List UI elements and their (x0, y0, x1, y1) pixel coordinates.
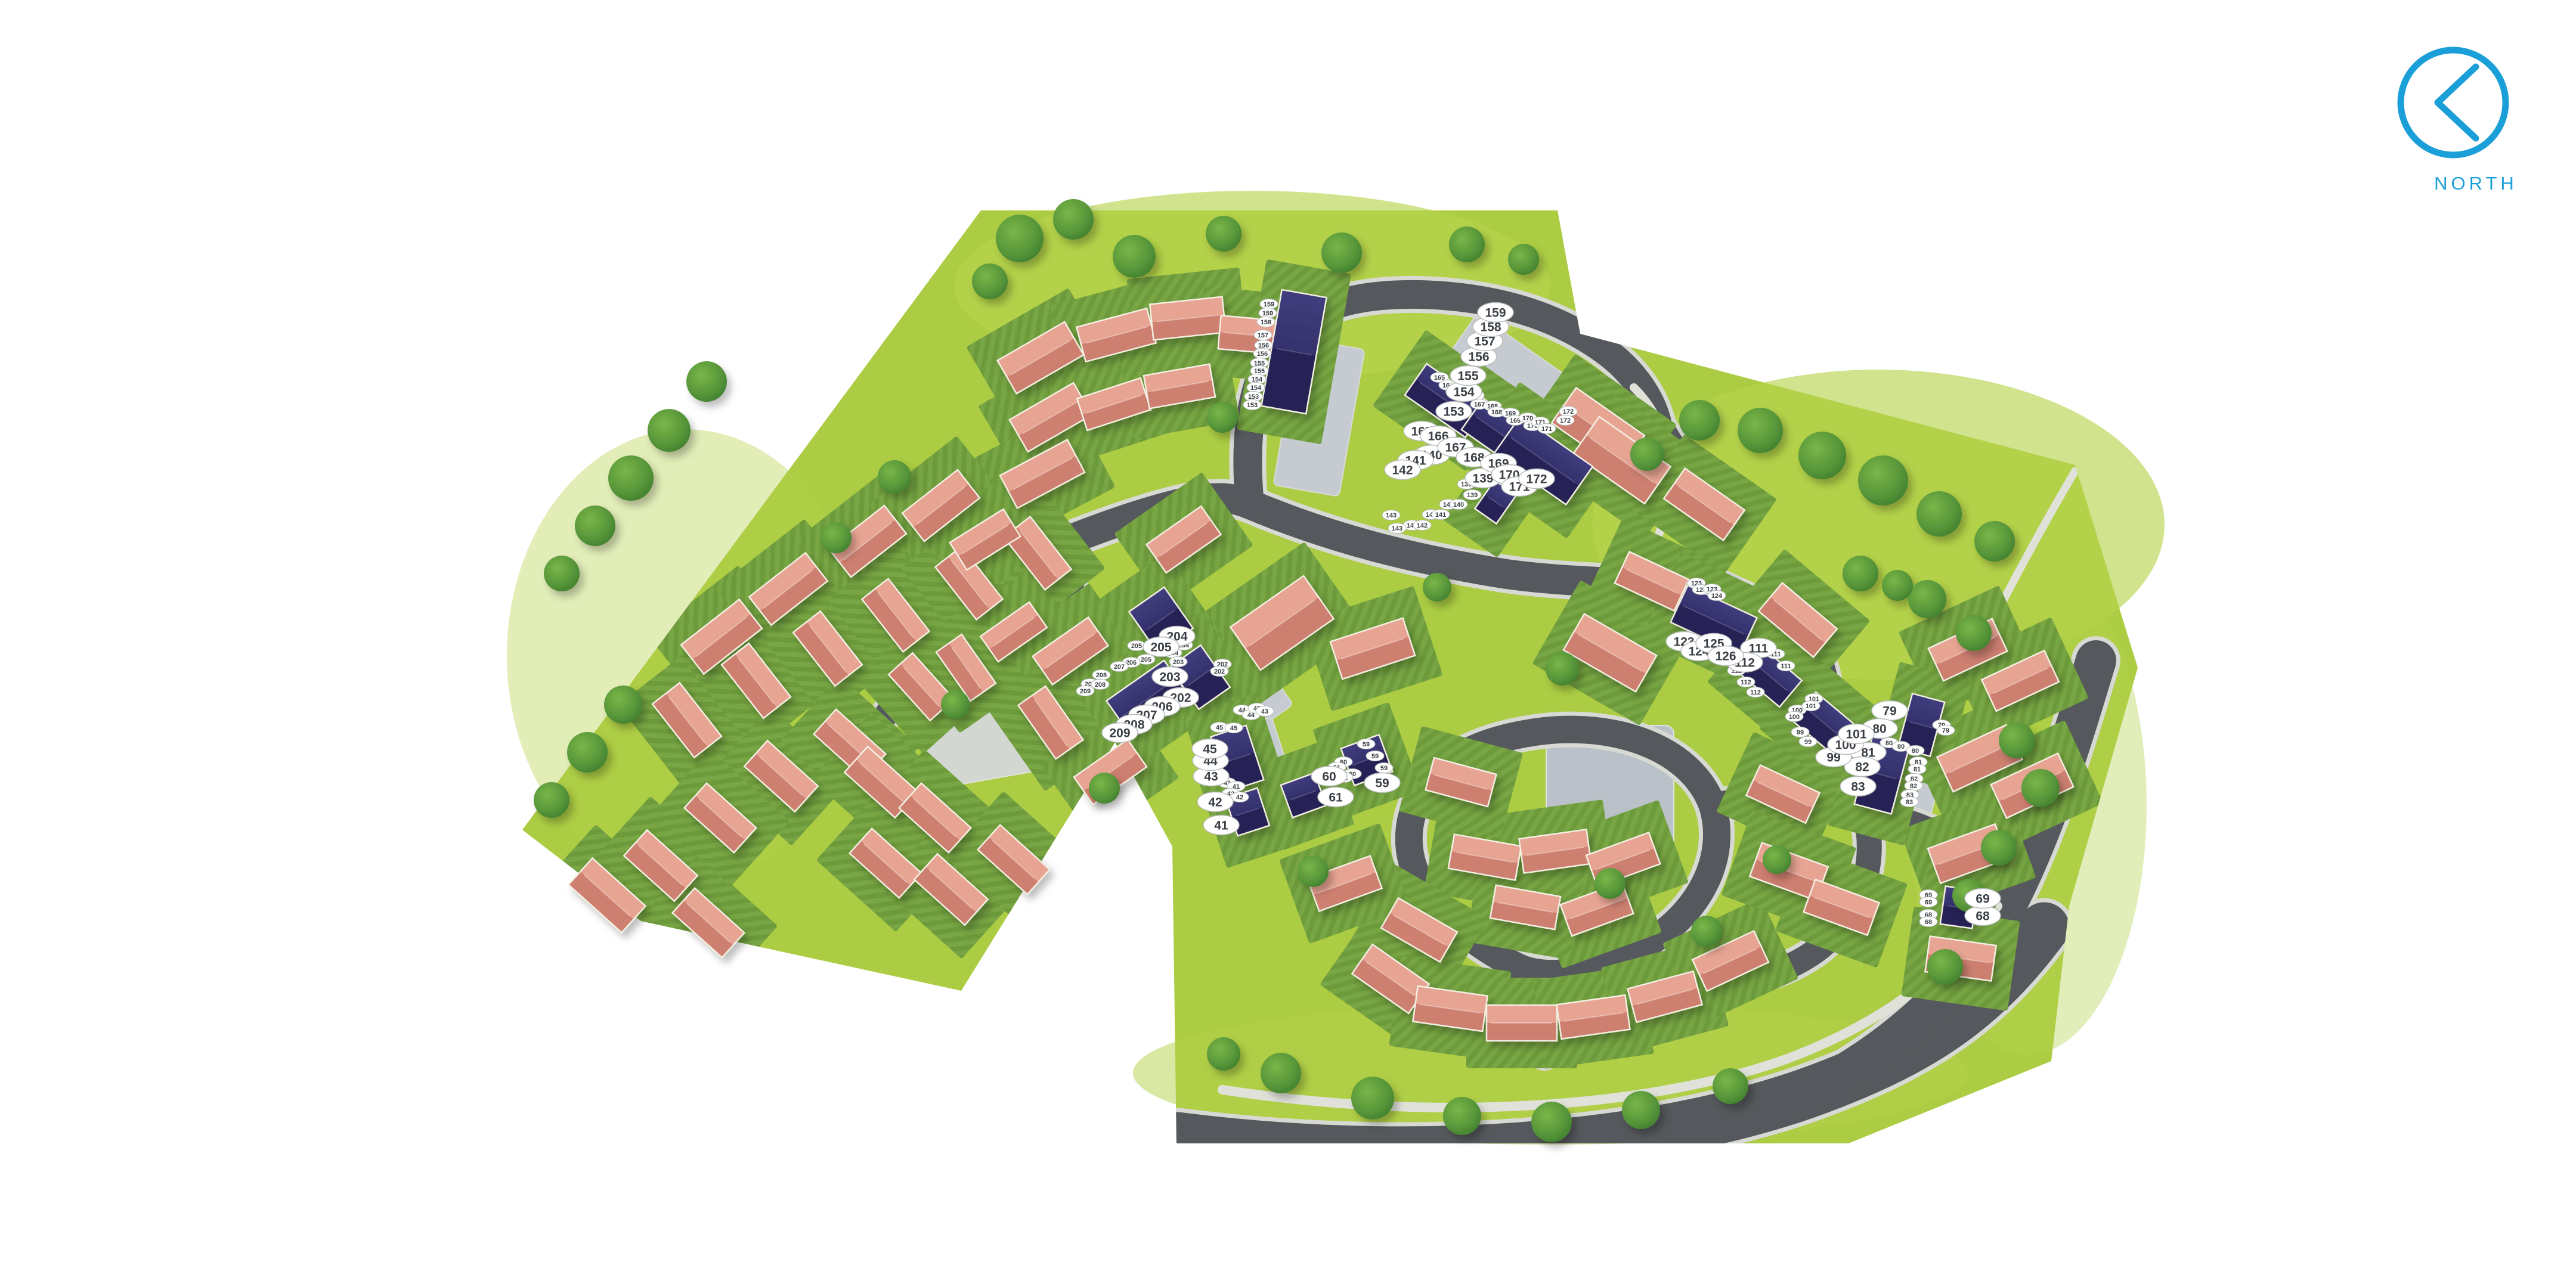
plot-badge-41[interactable]: 41 (1203, 816, 1239, 835)
plot-badge-81[interactable]: 81 (1908, 764, 1926, 774)
plot-badge-100[interactable]: 100 (1785, 712, 1803, 722)
svg-text:42: 42 (1208, 795, 1222, 809)
plot-badge-142[interactable]: 142 (1413, 520, 1431, 531)
tree (1206, 216, 1241, 252)
tree (1630, 438, 1664, 471)
site-plan-page: 1591591581571561561551551541541531531651… (0, 0, 2576, 1265)
plot-badge-111[interactable]: 111 (1777, 661, 1795, 671)
svg-text:154: 154 (1252, 376, 1263, 383)
svg-text:208: 208 (1095, 681, 1106, 689)
svg-text:69: 69 (1925, 899, 1932, 906)
tree (1594, 868, 1626, 899)
svg-text:141: 141 (1435, 511, 1446, 519)
plot-badge-158[interactable]: 158 (1257, 317, 1275, 327)
svg-text:43: 43 (1261, 708, 1268, 715)
svg-text:79: 79 (1883, 704, 1896, 718)
plot-badge-143[interactable]: 143 (1382, 510, 1400, 520)
site-plan-map: 1591591581571561561551551541541531531651… (0, 0, 2576, 1265)
tree (1053, 199, 1094, 240)
tree (1443, 1097, 1481, 1135)
svg-text:172: 172 (1563, 408, 1574, 416)
plot-badge-101[interactable]: 101 (1838, 724, 1874, 744)
tree (1321, 232, 1362, 273)
svg-text:41: 41 (1214, 818, 1228, 832)
svg-text:172: 172 (1560, 417, 1571, 424)
tree (1927, 949, 1963, 985)
plot-badge-153[interactable]: 153 (1436, 402, 1472, 421)
plot-badge-157[interactable]: 157 (1254, 330, 1272, 340)
plot-badge-45[interactable]: 45 (1192, 739, 1228, 759)
svg-text:81: 81 (1914, 766, 1921, 773)
svg-text:167: 167 (1474, 401, 1485, 408)
svg-text:155: 155 (1457, 369, 1478, 383)
svg-text:59: 59 (1371, 753, 1379, 760)
tree (1546, 652, 1579, 686)
plot-badge-155[interactable]: 155 (1450, 366, 1486, 386)
plot-badge-99[interactable]: 99 (1791, 727, 1809, 737)
plot-badge-79[interactable]: 79 (1937, 725, 1955, 736)
plot-badge-99[interactable]: 99 (1799, 737, 1817, 747)
svg-text:157: 157 (1258, 332, 1268, 339)
svg-text:159: 159 (1262, 310, 1273, 317)
svg-text:43: 43 (1204, 770, 1218, 783)
svg-text:208: 208 (1096, 672, 1107, 679)
svg-text:59: 59 (1363, 741, 1370, 748)
svg-text:60: 60 (1322, 770, 1336, 783)
svg-text:59: 59 (1380, 765, 1388, 772)
plot-badge-83[interactable]: 83 (1840, 777, 1876, 796)
svg-text:143: 143 (1386, 512, 1397, 519)
svg-text:100: 100 (1789, 714, 1800, 721)
plot-badge-69[interactable]: 69 (1919, 897, 1937, 907)
plot-badge-45[interactable]: 45 (1225, 723, 1243, 733)
tree (534, 782, 569, 818)
svg-text:205: 205 (1141, 656, 1151, 663)
svg-text:156: 156 (1257, 351, 1268, 358)
svg-text:45: 45 (1203, 742, 1217, 756)
svg-text:209: 209 (1109, 726, 1130, 740)
plot-badge-126[interactable]: 126 (1708, 646, 1744, 666)
tree (996, 215, 1044, 262)
svg-text:156: 156 (1258, 342, 1269, 349)
svg-text:83: 83 (1906, 799, 1913, 806)
svg-text:142: 142 (1392, 463, 1413, 477)
plot-badge-68[interactable]: 68 (1965, 906, 2001, 926)
svg-text:68: 68 (1925, 919, 1932, 926)
svg-text:205: 205 (1131, 643, 1142, 650)
svg-text:124: 124 (1711, 593, 1723, 600)
tree (1908, 580, 1946, 618)
plot-badge-154[interactable]: 154 (1247, 383, 1265, 393)
plot-badge-153[interactable]: 153 (1243, 400, 1261, 410)
tree (1763, 845, 1791, 874)
svg-text:171: 171 (1541, 426, 1552, 433)
tree (2021, 769, 2060, 807)
plot-badge-61[interactable]: 61 (1318, 787, 1354, 807)
svg-text:209: 209 (1080, 688, 1091, 695)
plot-badge-80[interactable]: 80 (1906, 746, 1924, 756)
plot-badge-101[interactable]: 101 (1802, 701, 1820, 711)
tree (1956, 615, 1992, 651)
plot-badge-207[interactable]: 207 (1110, 662, 1128, 672)
tree (1298, 856, 1329, 887)
svg-text:153: 153 (1247, 402, 1258, 409)
svg-text:82: 82 (1855, 760, 1869, 774)
tree (1207, 402, 1238, 433)
svg-text:80: 80 (1885, 740, 1893, 747)
svg-text:140: 140 (1453, 501, 1464, 509)
chevron-left-icon (2438, 67, 2476, 138)
svg-text:99: 99 (1804, 739, 1812, 746)
svg-text:45: 45 (1230, 725, 1237, 732)
svg-text:172: 172 (1526, 472, 1547, 486)
tree (1738, 408, 1783, 453)
svg-text:45: 45 (1216, 724, 1223, 731)
svg-text:68: 68 (1976, 909, 1990, 923)
svg-text:139: 139 (1472, 472, 1493, 485)
north-compass (2394, 43, 2513, 162)
svg-text:112: 112 (1750, 689, 1761, 696)
tree (1999, 723, 2035, 758)
svg-text:154: 154 (1453, 385, 1474, 399)
tree (686, 361, 727, 402)
plot-badge-142[interactable]: 142 (1385, 460, 1420, 480)
svg-text:143: 143 (1392, 525, 1402, 532)
tree (1449, 227, 1485, 262)
plot-badge-82[interactable]: 82 (1905, 781, 1922, 791)
disclaimer-text: *While we endeavour to make our property… (17, 1229, 1888, 1251)
plot-badge-205[interactable]: 205 (1143, 637, 1179, 657)
svg-text:139: 139 (1467, 492, 1478, 499)
tree (1423, 573, 1451, 602)
tree (1974, 521, 2015, 562)
svg-text:154: 154 (1250, 385, 1262, 392)
compass-circle-icon (2401, 50, 2506, 155)
plot-badge-202[interactable]: 202 (1210, 666, 1228, 677)
plot-badge-208[interactable]: 208 (1092, 670, 1110, 680)
plot-badge-172[interactable]: 172 (1556, 416, 1574, 426)
tree (1508, 244, 1539, 275)
svg-text:61: 61 (1329, 790, 1343, 804)
plot-badge-139[interactable]: 139 (1463, 490, 1481, 500)
svg-text:202: 202 (1214, 668, 1225, 675)
svg-text:69: 69 (1976, 892, 1989, 906)
svg-text:159: 159 (1485, 306, 1506, 320)
svg-text:203: 203 (1173, 659, 1184, 666)
plot-badge-83[interactable]: 83 (1900, 797, 1918, 807)
svg-text:59: 59 (1375, 776, 1389, 790)
plot-badge-208[interactable]: 208 (1091, 680, 1109, 690)
svg-text:207: 207 (1114, 663, 1125, 671)
plot-badge-59[interactable]: 59 (1375, 763, 1393, 773)
svg-text:101: 101 (1806, 703, 1816, 710)
house-detached-red (1487, 1005, 1557, 1041)
plot-badge-159[interactable]: 159 (1478, 303, 1513, 323)
plot-badge-156[interactable]: 156 (1253, 349, 1271, 359)
svg-text:153: 153 (1248, 393, 1259, 401)
plot-badge-42[interactable]: 42 (1197, 792, 1233, 812)
tree (1089, 773, 1120, 804)
tree (1981, 830, 2017, 866)
tree (1261, 1053, 1301, 1093)
tree (941, 690, 970, 719)
tree (1858, 455, 1908, 506)
plot-badge-203[interactable]: 203 (1169, 657, 1187, 667)
svg-text:42: 42 (1236, 794, 1243, 801)
tree (1691, 916, 1722, 947)
svg-text:153: 153 (1443, 405, 1464, 418)
tree (648, 409, 691, 452)
tree (1882, 570, 1913, 601)
tree (1113, 235, 1156, 278)
svg-text:101: 101 (1846, 727, 1866, 741)
plot-badge-141[interactable]: 141 (1432, 510, 1450, 520)
plot-badge-68[interactable]: 68 (1919, 917, 1937, 927)
svg-text:80: 80 (1912, 748, 1919, 755)
plot-badge-209[interactable]: 209 (1102, 723, 1138, 743)
plot-badge-143[interactable]: 143 (1388, 523, 1406, 534)
tree (1622, 1091, 1660, 1129)
plot-badge-59[interactable]: 59 (1357, 739, 1375, 749)
plot-badge-159[interactable]: 159 (1260, 299, 1278, 309)
svg-text:82: 82 (1910, 783, 1917, 790)
plot-badge-171[interactable]: 171 (1538, 424, 1556, 434)
svg-text:83: 83 (1851, 780, 1865, 793)
tree (544, 556, 580, 591)
svg-text:165: 165 (1434, 374, 1445, 382)
plot-badge-159[interactable]: 159 (1259, 308, 1277, 318)
plot-badge-43[interactable]: 43 (1256, 706, 1274, 717)
tree (1713, 1068, 1748, 1104)
svg-text:159: 159 (1264, 301, 1274, 308)
svg-text:80: 80 (1897, 743, 1905, 751)
svg-text:203: 203 (1159, 670, 1180, 684)
svg-text:111: 111 (1781, 663, 1791, 670)
plot-badge-60[interactable]: 60 (1311, 767, 1347, 786)
svg-text:155: 155 (1254, 368, 1265, 375)
tree (972, 263, 1008, 299)
svg-text:79: 79 (1942, 727, 1949, 734)
svg-text:80: 80 (1872, 722, 1886, 736)
tree (878, 460, 911, 494)
tree (1531, 1102, 1572, 1142)
svg-text:126: 126 (1715, 649, 1736, 663)
plot-badge-124[interactable]: 124 (1708, 591, 1726, 601)
tree (604, 686, 642, 724)
svg-text:205: 205 (1150, 640, 1171, 654)
tree (1351, 1077, 1394, 1120)
plot-badge-79[interactable]: 79 (1872, 701, 1908, 721)
plot-badge-140[interactable]: 140 (1450, 500, 1467, 510)
plot-badge-209[interactable]: 209 (1076, 686, 1094, 696)
tree (1207, 1037, 1240, 1071)
tree (575, 506, 615, 546)
plot-badge-172[interactable]: 172 (1559, 407, 1577, 417)
house-detached-red (1150, 297, 1226, 340)
svg-text:112: 112 (1741, 679, 1751, 686)
plot-badge-172[interactable]: 172 (1519, 469, 1555, 489)
plot-badge-59[interactable]: 59 (1366, 751, 1384, 761)
north-label: NORTH (2392, 173, 2559, 194)
tree (1843, 556, 1878, 591)
plot-badge-59[interactable]: 59 (1364, 773, 1400, 793)
svg-text:158: 158 (1261, 319, 1271, 326)
plot-badge-112[interactable]: 112 (1737, 677, 1755, 687)
plot-badge-203[interactable]: 203 (1152, 667, 1188, 687)
svg-text:142: 142 (1417, 522, 1428, 529)
plot-badge-112[interactable]: 112 (1747, 687, 1764, 697)
tree (821, 522, 852, 553)
tree (608, 455, 654, 501)
plot-badge-69[interactable]: 69 (1965, 889, 2001, 909)
svg-text:156: 156 (1468, 350, 1489, 364)
tree (1798, 432, 1846, 479)
svg-text:168: 168 (1491, 409, 1502, 416)
tree (1916, 491, 1962, 537)
tree (1679, 400, 1720, 441)
svg-text:99: 99 (1797, 729, 1804, 736)
tree (567, 732, 608, 773)
